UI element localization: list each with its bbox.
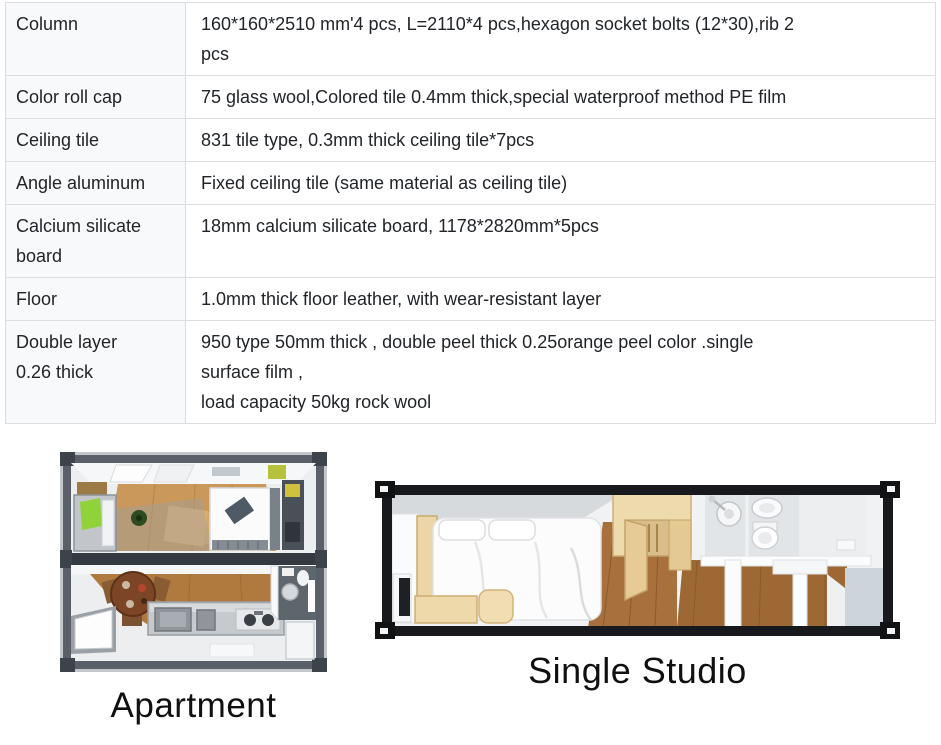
upper-unit-bedroom xyxy=(71,463,316,551)
toilet-lower xyxy=(297,570,309,586)
table-row: Calcium silicate board 18mm calcium sili… xyxy=(6,205,936,278)
table-row: Floor 1.0mm thick floor leather, with we… xyxy=(6,278,936,321)
kitchen-counter xyxy=(148,602,284,635)
washer xyxy=(282,584,298,600)
bedroom-zone xyxy=(392,514,601,623)
tv xyxy=(393,574,411,622)
wardrobe-open-door xyxy=(625,520,647,600)
bed-upper xyxy=(210,488,280,550)
desk xyxy=(415,596,477,623)
table-row: Double layer 0.26 thick 950 type 50mm th… xyxy=(6,321,936,424)
bathroom-zone xyxy=(701,492,871,566)
ceiling-vent xyxy=(212,467,240,476)
tv-cabinet xyxy=(282,480,304,550)
side-window xyxy=(308,580,315,612)
single-studio-floorplan-image xyxy=(375,478,900,643)
spec-row-value: 1.0mm thick floor leather, with wear-res… xyxy=(186,278,936,321)
shelf-item xyxy=(268,465,286,479)
chair xyxy=(479,590,513,623)
partition-wall-1 xyxy=(725,560,741,628)
table-row: Column 160*160*2510 mm'4 pcs, L=2110*4 p… xyxy=(6,3,936,76)
table-row: Color roll cap 75 glass wool,Colored til… xyxy=(6,76,936,119)
apartment-plan-figure: Apartment xyxy=(60,452,327,726)
spec-row-value: 831 tile type, 0.3mm thick ceiling tile*… xyxy=(186,119,936,162)
studio-plan-figure: Single Studio xyxy=(375,478,900,692)
apartment-floorplan-image xyxy=(60,452,327,672)
studio-caption: Single Studio xyxy=(375,650,900,692)
spec-row-label: Ceiling tile xyxy=(6,119,186,162)
floor-mat xyxy=(210,644,254,657)
spec-row-label: Angle aluminum xyxy=(6,162,186,205)
spec-table: Column 160*160*2510 mm'4 pcs, L=2110*4 p… xyxy=(5,2,936,424)
product-description-page: Column 160*160*2510 mm'4 pcs, L=2110*4 p… xyxy=(0,0,941,745)
bathroom-sink xyxy=(752,498,782,518)
spec-row-label: Column xyxy=(6,3,186,76)
spec-row-label: Floor xyxy=(6,278,186,321)
spec-row-label: Double layer 0.26 thick xyxy=(6,321,186,424)
spec-row-value: 75 glass wool,Colored tile 0.4mm thick,s… xyxy=(186,76,936,119)
pillow-left xyxy=(439,520,485,540)
apartment-caption: Apartment xyxy=(60,686,327,726)
shower-tray xyxy=(286,622,314,659)
toilet xyxy=(752,522,778,549)
potted-plant xyxy=(131,510,147,526)
green-clothes xyxy=(80,498,102,530)
spec-row-value: Fixed ceiling tile (same material as cei… xyxy=(186,162,936,205)
paper-box xyxy=(837,540,855,550)
partition-wall-2 xyxy=(793,574,807,628)
sink-small xyxy=(197,610,215,630)
wardrobe-side xyxy=(669,520,691,570)
table-row: Ceiling tile 831 tile type, 0.3mm thick … xyxy=(6,119,936,162)
pillow-right xyxy=(489,520,535,540)
spec-row-value: 950 type 50mm thick , double peel thick … xyxy=(186,321,936,424)
entry-wall-panel xyxy=(845,568,885,629)
table-row: Angle aluminum Fixed ceiling tile (same … xyxy=(6,162,936,205)
spec-row-value: 160*160*2510 mm'4 pcs, L=2110*4 pcs,hexa… xyxy=(186,3,936,76)
spec-row-label: Calcium silicate board xyxy=(6,205,186,278)
spec-row-value: 18mm calcium silicate board, 1178*2820mm… xyxy=(186,205,936,278)
spec-row-label: Color roll cap xyxy=(6,76,186,119)
